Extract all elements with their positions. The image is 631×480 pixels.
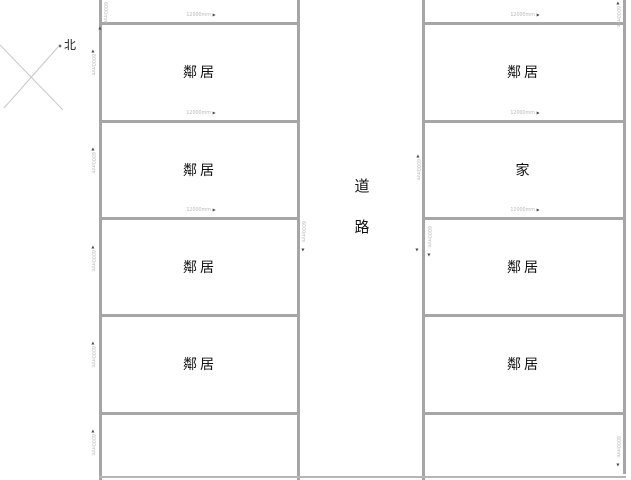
dimension-value: 6000mm xyxy=(616,6,621,28)
north-label: 北 xyxy=(64,36,76,53)
boundary-line-left-row2 xyxy=(99,120,300,123)
dimension-value: 12000mm xyxy=(186,12,211,18)
lot-label-neighbor: 鄰居 xyxy=(183,354,217,374)
up-arrow-icon: ▲ xyxy=(616,2,619,6)
dimension-value: 6000mm xyxy=(427,226,432,248)
up-arrow-icon: ▲ xyxy=(91,50,94,54)
lot-label-neighbor: 鄰居 xyxy=(183,257,217,277)
height-dimension-label: ▲ 6000mm xyxy=(615,1,621,33)
width-dimension-label: 12000mm ▶ xyxy=(186,12,215,18)
boundary-line-right-col-west xyxy=(422,0,425,480)
dimension-value: 6000mm xyxy=(91,152,96,174)
boundary-line-right-col-east xyxy=(623,0,626,474)
dimension-value: 6000mm xyxy=(91,54,96,76)
lot-label-neighbor: 鄰居 xyxy=(183,62,217,82)
dimension-value: 12000mm xyxy=(186,110,211,116)
down-arrow-icon: ▼ xyxy=(415,249,418,253)
boundary-line-left-row1 xyxy=(99,22,300,25)
width-dimension-label: 12000mm ▶ xyxy=(510,207,539,213)
boundary-line-left-row5 xyxy=(99,412,300,415)
down-arrow-icon: ▼ xyxy=(616,463,619,467)
height-dimension-label: ▲ 6000mm xyxy=(90,245,96,277)
dimension-value: 6000mm xyxy=(91,250,96,272)
height-dimension-label: 6000mm ▼ xyxy=(615,436,621,468)
dimension-value: 12000mm xyxy=(510,110,535,116)
dimension-value: 6000mm xyxy=(416,159,421,181)
boundary-line-left-row4 xyxy=(99,314,300,317)
lot-label-neighbor: 鄰居 xyxy=(507,354,541,374)
height-dimension-label: 6000mm xyxy=(102,2,108,29)
down-arrow-icon: ▼ xyxy=(427,253,430,257)
boundary-line-right-row3 xyxy=(422,217,626,220)
right-arrow-icon: ▶ xyxy=(213,13,216,18)
right-arrow-icon: ▶ xyxy=(537,111,540,116)
dimension-value: 6000mm xyxy=(91,346,96,368)
height-dimension-label: 6000mm ▼ xyxy=(426,226,432,258)
boundary-line-left-col-west xyxy=(99,0,102,480)
up-arrow-icon: ▲ xyxy=(98,27,101,31)
right-arrow-icon: ▶ xyxy=(213,111,216,116)
width-dimension-label: 12000mm ▶ xyxy=(510,110,539,116)
width-dimension-label: 12000mm ▶ xyxy=(510,12,539,18)
height-dimension-label: ▲ 6000mm xyxy=(90,49,96,81)
boundary-line-right-row2 xyxy=(422,120,626,123)
up-arrow-icon: ▲ xyxy=(91,246,94,250)
lot-label-home: 家 xyxy=(516,160,533,180)
boundary-line-right-row5 xyxy=(422,412,626,415)
dimension-value: 6000mm xyxy=(91,434,96,456)
down-arrow-icon: ▼ xyxy=(301,248,304,252)
road-label: 道 路 xyxy=(354,166,369,248)
width-dimension-label: 12000mm ▶ xyxy=(186,110,215,116)
up-arrow-icon: ▲ xyxy=(91,342,94,346)
boundary-line-bottom-edge xyxy=(99,476,626,478)
right-arrow-icon: ▶ xyxy=(213,208,216,213)
dimension-value: 6000mm xyxy=(616,436,621,458)
up-arrow-icon: ▲ xyxy=(91,148,94,152)
dimension-value: 12000mm xyxy=(510,12,535,18)
compass-icon xyxy=(0,30,90,120)
lot-label-neighbor: 鄰居 xyxy=(183,160,217,180)
boundary-line-right-row4 xyxy=(422,314,626,317)
lot-label-neighbor: 鄰居 xyxy=(507,257,541,277)
height-dimension-label: 6000mm ▼ xyxy=(300,221,306,253)
up-arrow-icon: ▲ xyxy=(91,430,94,434)
height-dimension-label: ▲ 6000mm xyxy=(90,341,96,373)
boundary-line-left-row3 xyxy=(99,217,300,220)
dimension-arrow-mark: ▲ xyxy=(98,26,102,31)
site-plan-canvas: 北 鄰居 鄰居 鄰居 鄰居 鄰居 家 鄰居 鄰居 道 路 12000mm ▶ 1… xyxy=(0,0,631,480)
height-dimension-label: ▲ 6000mm xyxy=(90,147,96,179)
dimension-value: 12000mm xyxy=(186,207,211,213)
boundary-line-right-row1 xyxy=(422,22,626,25)
lot-label-neighbor: 鄰居 xyxy=(507,62,541,82)
right-arrow-icon: ▶ xyxy=(537,208,540,213)
up-arrow-icon: ▲ xyxy=(416,155,419,159)
width-dimension-label: 12000mm ▶ xyxy=(186,207,215,213)
dimension-value: 12000mm xyxy=(510,207,535,213)
right-arrow-icon: ▶ xyxy=(537,13,540,18)
dimension-value: 6000mm xyxy=(301,221,306,243)
height-dimension-label: ▲ 6000mm xyxy=(90,429,96,461)
dimension-value: 6000mm xyxy=(103,2,108,24)
dimension-arrow-mark: ▼ xyxy=(415,248,419,253)
height-dimension-label: ▲ 6000mm xyxy=(415,154,421,186)
